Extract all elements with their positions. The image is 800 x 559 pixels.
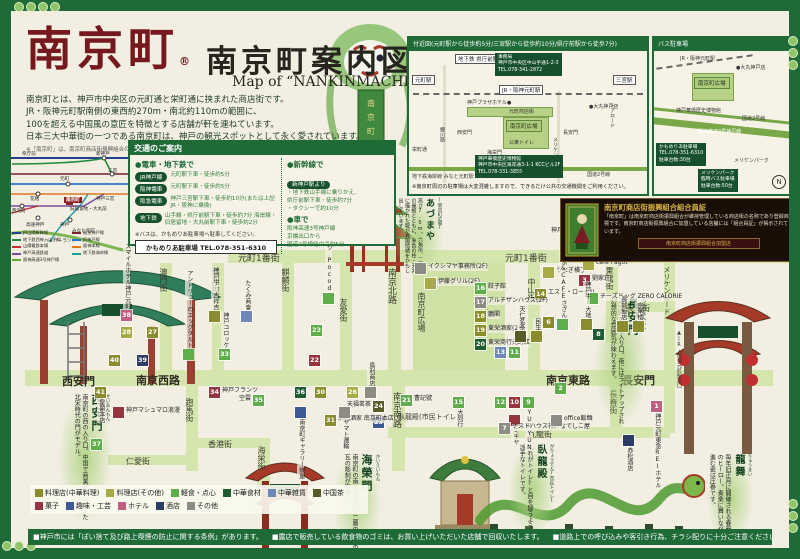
shop-marker: 34神戸フランツ	[209, 387, 220, 398]
panel-map-label: 長安門	[563, 129, 578, 136]
shop-marker: アンドリューのエッグタルト	[183, 349, 194, 360]
panel-map-label: メリケンパーク 臨時バス駐車場 駐車台数:50台	[698, 169, 738, 192]
bus-parking-note: ※バスは、かもめりあ駐車場へ駐車してください。	[135, 230, 277, 238]
marker-square: 16	[475, 283, 486, 294]
shop-label: 劉家荘	[592, 276, 610, 283]
marker-square	[113, 407, 124, 418]
legend-swatch	[171, 489, 179, 497]
shop-label: 空雲	[239, 396, 251, 403]
transport-guide-box: 交通のご案内 ●電車・地下鉄で JR神戸線元町駅下車・徒歩約5分阪神電車元町駅下…	[128, 140, 396, 246]
vicinity-map-panel: 付近図(元町駅から徒歩約5分/三宮駅から徒歩約10分/県庁前駅から徒歩7分) 地…	[407, 36, 649, 196]
shop-marker: 31順記酒家 南京町本店	[325, 415, 336, 426]
legend-label: 趣味・工芸	[76, 501, 111, 511]
marker-square: 39	[137, 355, 148, 366]
bus-parking-body: JR・阪神元町駅●大丸神戸店南京町広場神戸華僑歴史博物館国道2号線阪神高速3号神…	[654, 51, 793, 194]
shop-marker: 20東栄商行元町店	[475, 339, 486, 350]
street-label: 仁愛街	[126, 456, 150, 467]
legend-swatch	[156, 502, 164, 510]
member-certificate-stamp	[565, 203, 599, 257]
shop-marker: 17アルチザンハウス(2F)	[475, 297, 486, 308]
marker-square	[415, 263, 426, 274]
shop-marker: office飯麺	[551, 415, 562, 426]
rail-legend-item: 阪神高速3号神戸線	[12, 257, 72, 264]
marker-square	[623, 435, 634, 446]
shop-marker: チーズドッグ Pocod	[323, 293, 334, 304]
shop-label: 長城飯店	[619, 296, 626, 320]
footer-notes-bar: ■神戸市には「ぽい捨て及び路上喫煙の防止に関する条例」があります。■露店で販売し…	[28, 529, 772, 545]
marker-square	[531, 331, 542, 342]
shop-marker: うなぎ横丁	[543, 267, 554, 278]
legend-swatch	[106, 489, 114, 497]
legend-item: ホテル	[118, 501, 149, 511]
shop-label: イクシマヤ事務所(2F)	[428, 264, 488, 271]
shop-marker: 11	[509, 347, 520, 358]
registered-trademark-icon: ®	[179, 55, 190, 68]
intro-description: 南京町とは、神戸市中央区の元町通と栄町通に挟まれた商店街です。JR・阪神元町駅南…	[26, 94, 365, 143]
marker-square: 2	[555, 383, 566, 394]
station-label: 神戸	[60, 222, 69, 228]
member-certificate-plaque: 南京町商店街振興組合加盟店	[638, 238, 760, 249]
footer-note: ■露店で販売している飲食物のゴミは、お買い上げいただいた店舗で回収いたします。	[272, 529, 544, 545]
transport-train-column: ●電車・地下鉄で JR神戸線元町駅下車・徒歩約5分阪神電車元町駅下車・徒歩約5分…	[135, 158, 282, 254]
shop-marker: 鳥利商店	[365, 387, 376, 398]
transport-guide-title: 交通のご案内	[130, 142, 394, 155]
marker-square: 20	[475, 339, 486, 350]
rail-legend-swatch	[12, 246, 21, 248]
legend-swatch	[268, 489, 276, 497]
legend-swatch	[313, 489, 321, 497]
legend-label: 中国茶	[323, 488, 344, 498]
marker-square	[295, 407, 306, 418]
border-coin-ornament	[14, 2, 24, 12]
shop-label: 天福茗茶	[347, 402, 371, 409]
border-coin-ornament	[788, 60, 798, 70]
transport-row-text: 元町駅下車・徒歩約5分	[170, 172, 230, 179]
legend-item: 料理店(中華料理)	[35, 488, 99, 498]
shop-label: スマイルホテル神戸元町	[123, 243, 130, 309]
marker-square: 34	[209, 387, 220, 398]
legend-label: 中華雑貨	[278, 488, 306, 498]
marker-square: 10	[509, 397, 520, 408]
marker-square: 23	[311, 325, 322, 336]
shop-label: 伊藤グリル(2F)	[438, 279, 480, 286]
nankinmachi-map-page: 南京町® 南京町案内図 Map of “NANKINMACHI”area 南京町…	[0, 0, 800, 559]
shop-marker: 24天福茗茶	[373, 401, 384, 412]
panel-map-label: 事務局 神戸市中央区中山手通1-2-3 TEL.078-341-2872	[495, 53, 562, 76]
shop-marker: 民生	[531, 331, 542, 342]
rail-legend-label: 阪神高速3号神戸線	[23, 257, 59, 264]
shop-label: 京華楼	[635, 302, 642, 320]
category-legend: 料理店(中華料理)料理店(その他)軽食・点心中華食材中華雑貨中国茶菓子趣味・工芸…	[30, 485, 368, 514]
street-label: 香港街	[208, 439, 232, 450]
shop-label: チーズドッグ ZERO CALORIE	[600, 294, 682, 301]
rail-line-badge: JR神戸線	[135, 172, 167, 182]
marker-square: 31	[325, 415, 336, 426]
panel-map-label: 鯉川筋	[439, 127, 446, 142]
shop-label: 餃子館	[488, 284, 506, 291]
logo-text: 南京町	[26, 22, 179, 76]
rail-legend-label: 神戸高速鉄道	[23, 250, 48, 257]
transport-shinkansen-column: ●新幹線で 新神戸駅より ・地下鉄山手線に乗りかえ、 県庁前駅下車・徒歩約7分・…	[287, 158, 389, 254]
panel-map-label: 国道2号線	[587, 171, 610, 178]
shop-marker: 伊藤グリル(2F)	[425, 278, 436, 289]
street-label: 元町1番街	[505, 251, 547, 264]
shop-label: アンドリューのエッグタルト	[185, 270, 192, 348]
shop-marker: 6	[543, 317, 554, 328]
shop-marker: 2	[555, 383, 566, 394]
shop-marker: 23	[311, 325, 322, 336]
car-header: ●車で	[287, 214, 389, 225]
rail-legend-label: 地下鉄海岸線	[83, 250, 108, 257]
shop-marker: 19東栄酒家(2F)	[475, 325, 486, 336]
rail-line-badge: 阪急電車	[135, 196, 167, 206]
garyoden-description: がりょうでん(市民トイレ) 臥龍殿 これがトイレ?と目を疑うような派手なトイレで…	[508, 442, 556, 538]
marker-square: 30	[315, 387, 326, 398]
street-label: 西安門	[62, 373, 95, 389]
shop-marker: イクシマヤ事務所(2F)	[415, 263, 426, 274]
transport-train-row: 地下鉄山手線・県庁前駅下車・徒歩約7分 海岸線・旧居留地・大丸前駅下車・徒歩約2…	[135, 213, 277, 228]
member-certificate-title: 南京町商店街振興組合組合員証	[604, 203, 793, 213]
legend-item: 料理店(その他)	[106, 488, 163, 498]
shop-marker: 36	[295, 387, 306, 398]
marker-square	[323, 293, 334, 304]
rail-legend-swatch	[72, 239, 81, 241]
transport-row-text: 神戸三宮駅下車・徒歩約10分(または上記JR・阪神に乗換)	[170, 196, 277, 211]
legend-item: 菓子	[35, 501, 59, 511]
shop-label: 神戸マシュマロ浪漫	[126, 408, 180, 415]
panel-map-label: トアロード	[609, 103, 616, 128]
rail-legend-swatch	[72, 232, 81, 234]
transport-line: ・地下鉄山手線に乗りかえ、	[287, 190, 389, 198]
shop-label: たくみ商會	[243, 280, 250, 310]
transport-train-row: 阪神電車元町駅下車・徒歩約5分	[135, 184, 277, 194]
panel-map-label: 三宮駅	[613, 75, 636, 85]
rail-legend-label: 阪急神戸線	[83, 230, 104, 237]
panel-map-label: 神戸華僑歴史博物館	[676, 107, 721, 114]
border-coin-ornament	[2, 541, 12, 551]
member-certificate-textblock: 南京町商店街振興組合組合員証 「南京町」は南京町商店街振興組合が維持管理している…	[604, 203, 793, 257]
marker-square: 41	[95, 387, 106, 398]
shop-label: 曹記號	[414, 396, 432, 403]
shop-label: 神戸牛 吉祥吉	[211, 267, 218, 310]
rail-legend-item: 神戸高速鉄道	[12, 250, 72, 257]
station-label: 元町	[60, 176, 69, 182]
description-line: JR・阪神元町駅南側の東西約270m・南北約110mの範囲に、	[26, 106, 365, 118]
svg-text:京: 京	[367, 112, 375, 122]
shop-label: 神戸牛 大地	[583, 281, 590, 318]
shop-label: 赤松酒店	[625, 447, 632, 471]
shop-label: 皇蘭本店	[97, 399, 104, 423]
legend-swatch	[66, 502, 74, 510]
rail-line-badge: 阪神電車	[135, 184, 167, 194]
panel-map-label: 地下鉄海岸線 みなと元町駅	[412, 173, 474, 180]
shinkansen-header: ●新幹線で	[287, 159, 389, 170]
panel-map-label: 阪神高速3号神戸線	[698, 128, 741, 135]
station-label-nankinmachi: 南京町	[64, 197, 82, 203]
vicinity-title: 付近図(元町駅から徒歩約5分/三宮駅から徒歩約10分/県庁前駅から徒歩7分)	[409, 38, 647, 51]
panel-map-label: 南京町広場	[694, 77, 730, 89]
panel-map-label: ※南京町周辺の駐車場は大変混雑しますので、できるだけ公共の交通機関をご利用くださ…	[412, 183, 629, 190]
marker-square	[183, 349, 194, 360]
landmark-desc: これがトイレ?と目を疑うような派手なトイレです。	[517, 444, 533, 536]
shop-marker: 30	[315, 387, 326, 398]
transport-guide-body: ●電車・地下鉄で JR神戸線元町駅下車・徒歩約5分阪神電車元町駅下車・徒歩約5分…	[130, 155, 394, 257]
shop-label: 鵬閣	[488, 312, 500, 319]
station-label: 旧居留地・大丸前	[70, 206, 107, 212]
shinkansen-lines: ・地下鉄山手線に乗りかえ、 県庁前駅下車・徒歩約7分・タクシーで約10分	[287, 190, 389, 213]
legend-swatch	[223, 489, 231, 497]
shop-marker: 27	[147, 327, 158, 338]
street-label: 南京東路	[546, 372, 590, 388]
border-coin-ornament	[788, 48, 798, 58]
shop-marker: 南京町ギャラリー蝶屋	[295, 407, 306, 418]
shop-marker: 7ゲストハウス神戸なでしこ屋	[499, 423, 510, 434]
marker-square: 7	[499, 423, 510, 434]
shop-marker: 神戸牛 大地	[581, 319, 592, 330]
shop-marker: 神戸牛 吉祥吉	[209, 311, 220, 322]
border-coin-ornament	[788, 36, 798, 46]
shop-marker: 天仁茗茶	[515, 331, 526, 342]
street-label: 友愛街	[338, 298, 349, 322]
transport-line: 県庁前駅下車・徒歩約7分	[287, 198, 389, 206]
marker-square: 38	[121, 310, 132, 321]
legend-item: 中華雑貨	[268, 488, 306, 498]
marker-square: 37	[91, 439, 102, 450]
marker-square	[633, 321, 644, 332]
street-label: ▲JR・阪神元町駅東口	[676, 330, 683, 388]
street-label: 麒麟街	[280, 268, 291, 292]
shop-label: office飯麺	[564, 416, 592, 423]
shop-label: アルチザンハウス(2F)	[488, 298, 548, 305]
border-coin-ornament	[788, 499, 798, 509]
shop-marker: 35空雲	[253, 395, 264, 406]
shop-marker: 38スマイルホテル神戸元町	[121, 310, 132, 321]
legend-swatch	[35, 502, 43, 510]
station-label: 西元町	[12, 208, 26, 214]
legend-item: 趣味・工芸	[66, 501, 111, 511]
landmark-name: 臥龍殿	[533, 444, 548, 536]
marker-square	[543, 267, 554, 278]
marker-square	[551, 415, 562, 426]
transport-train-row: JR神戸線元町駅下車・徒歩約5分	[135, 172, 277, 182]
panel-map-label: 元町駅	[412, 75, 435, 85]
transport-row-text: 元町駅下車・徒歩約5分	[170, 184, 230, 191]
marker-square	[515, 331, 526, 342]
panel-map-label: N	[772, 175, 786, 189]
legend-label: 菓子	[45, 501, 59, 511]
legend-label: その他	[197, 501, 218, 511]
rail-legend-item: JR山陽新幹線	[12, 230, 72, 237]
legend-label: 酒店	[166, 501, 180, 511]
shop-marker: 10	[509, 397, 520, 408]
shop-marker: 神戸マシュマロ浪漫	[113, 407, 124, 418]
station-label: 神戸三宮	[96, 196, 114, 202]
street-label: メリケンロード	[662, 266, 672, 315]
shop-label: 民生	[533, 318, 540, 330]
panel-map-label: JR・阪神元町駅	[499, 85, 543, 95]
panel-map-label: 公衆トイレ	[509, 139, 534, 146]
legend-label: 料理店(その他)	[116, 488, 163, 498]
street-label: 澳門街	[158, 268, 169, 292]
train-subway-header: ●電車・地下鉄で	[135, 159, 277, 170]
marker-square	[241, 311, 252, 322]
street-label: 臥龍殿(市民トイレ)	[398, 412, 459, 422]
description-line: 南京町とは、神戸市中央区の元町通と栄町通に挟まれた商店街です。	[26, 94, 365, 106]
kamomeria-tel: かもめりあ駐車場 TEL.078-351-6310	[135, 240, 277, 254]
transport-line: 京橋出口から	[287, 234, 389, 242]
shop-label: 神戸フランツ	[222, 388, 258, 395]
border-coin-ornament	[26, 2, 36, 12]
street-label: 南京西路	[136, 372, 180, 388]
nankinmachi-logo: 南京町®	[26, 26, 190, 72]
marker-square: 11	[509, 347, 520, 358]
member-certificate-box: 南京町商店街振興組合組合員証 「南京町」は南京町商店街振興組合が維持管理している…	[560, 198, 798, 262]
shop-marker: 40	[109, 355, 120, 366]
marker-square: 26	[347, 387, 358, 398]
marker-square: 9	[523, 397, 534, 408]
marker-square: 19	[475, 325, 486, 336]
vicinity-body: 地下鉄 県庁前駅元町駅三宮駅事務局 神戸市中央区中山手通1-2-3 TEL.07…	[409, 51, 647, 194]
marker-square: 1	[651, 401, 662, 412]
street-label: 南京町広場	[416, 292, 427, 332]
panel-map-label: 国道2号線	[742, 115, 765, 122]
street-label: 跑馬街	[184, 398, 195, 422]
panel-map-label: 西安門	[457, 129, 472, 136]
panel-map-label: 神戸プラザホテル●	[467, 99, 511, 106]
vicinity-road	[443, 65, 446, 183]
shop-label: 大同行	[455, 409, 462, 427]
rail-legend-swatch	[12, 232, 21, 234]
shop-marker: 21曹記號	[401, 395, 412, 406]
marker-square: 6	[543, 317, 554, 328]
marker-square: 33	[219, 349, 230, 360]
panel-map-label: かもめりあ駐車場 TEL.078-351-6310 駐車台数:30台	[656, 143, 706, 166]
panel-map-label: 南京町広場	[506, 120, 542, 132]
shop-marker: 33神戸コロッケ	[219, 349, 230, 360]
transport-line: 国道2号線経由で約5分	[287, 242, 389, 250]
shop-marker: たくみ商會	[241, 311, 252, 322]
marker-square	[365, 387, 376, 398]
panel-map-label: メリケンパーク	[734, 157, 769, 164]
legend-item: 中国茶	[313, 488, 344, 498]
marker-square	[617, 321, 628, 332]
transport-line: ・タクシーで約10分	[287, 206, 389, 214]
shop-marker: 28	[121, 327, 132, 338]
description-line: 100を超える中国風の意匠を特徴とする店舗が軒を連ねています。	[26, 119, 365, 131]
station-label: 三宮	[108, 168, 117, 174]
shop-label: 南京町ギャラリー蝶屋	[297, 419, 304, 479]
marker-square: 35	[253, 395, 264, 406]
legend-label: 軽食・点心	[181, 488, 216, 498]
shop-label: 鳥利商店	[367, 362, 374, 386]
shop-marker: 15大同行	[453, 397, 464, 408]
shop-marker: 12	[495, 397, 506, 408]
legend-swatch	[35, 489, 43, 497]
shop-marker: 39	[137, 355, 148, 366]
shop-marker: 赤松酒店	[623, 435, 634, 446]
legend-label: ホテル	[128, 501, 149, 511]
rail-legend-swatch	[12, 259, 21, 261]
marker-square	[209, 311, 220, 322]
transport-train-row: 阪急電車神戸三宮駅下車・徒歩約10分(または上記JR・阪神に乗換)	[135, 196, 277, 211]
shop-marker: 37	[91, 439, 102, 450]
shop-marker: 京華楼	[633, 321, 644, 332]
border-coin-ornament	[38, 2, 48, 12]
marker-square: 27	[147, 327, 158, 338]
rail-legend-swatch	[12, 239, 21, 241]
marker-square	[581, 319, 592, 330]
marker-square	[557, 319, 568, 330]
shop-marker: 16餃子館	[475, 283, 486, 294]
marker-square: 8	[593, 329, 604, 340]
rail-legend-swatch	[72, 246, 81, 248]
legend-label: 中華食材	[233, 488, 261, 498]
border-coin-ornament	[50, 2, 60, 12]
marker-square: 15	[453, 397, 464, 408]
marker-square: 21	[401, 395, 412, 406]
border-coin-ornament	[788, 523, 798, 533]
marker-square: 18	[475, 311, 486, 322]
panel-map-label: 神戸華僑歴史博物館 神戸市中央区海岸通3-1-1 KCCビル2F TEL.078…	[475, 155, 563, 178]
marker-square: 40	[109, 355, 120, 366]
panel-map-label: 元町商店街	[509, 108, 534, 115]
member-certificate-body: 「南京町」は南京町商店街振興組合が維持管理している商店街の名称であり登録商標です…	[604, 214, 793, 236]
border-coin-ornament	[788, 511, 798, 521]
rail-legend-item: 阪急神戸線	[72, 230, 132, 237]
panel-map-label: ●大丸神戸店	[736, 64, 765, 71]
rail-legend-swatch	[12, 253, 21, 255]
marker-square	[339, 407, 350, 418]
legend-item: 中華食材	[223, 488, 261, 498]
marker-square: 13	[495, 347, 506, 358]
marker-square: 17	[475, 297, 486, 308]
shop-label: ヤマト運輸	[341, 419, 348, 449]
gate-east-illustration	[648, 290, 788, 458]
bus-parking-panel: バス駐車場 JR・阪神元町駅●大丸神戸店南京町広場神戸華僑歴史博物館国道2号線阪…	[652, 36, 795, 196]
shop-marker: 長城飯店	[617, 321, 628, 332]
marker-square	[425, 278, 436, 289]
shop-marker: 8	[593, 329, 604, 340]
svg-text:町: 町	[367, 127, 375, 136]
shop-marker: 41皇蘭本店	[95, 387, 106, 398]
marker-square: 22	[309, 355, 320, 366]
station-label: 花隈	[30, 196, 39, 202]
bus-parking-title: バス駐車場	[654, 38, 793, 51]
shop-marker: ヤマト運輸	[339, 407, 350, 418]
rail-line-badge: 地下鉄	[135, 213, 162, 223]
car-lines: 阪神高速3号神戸線京橋出口から国道2号線経由で約5分	[287, 226, 389, 249]
shop-marker: かき氷&CAFEさざん	[557, 319, 568, 330]
shop-marker: 1神戸元町東急REIホテル	[651, 401, 662, 412]
legend-label: 料理店(中華料理)	[45, 488, 99, 498]
rail-legend: JR山陽新幹線阪急神戸線地下鉄西神・山手線JR神戸線山陽電鉄本線阪神本線神戸高速…	[12, 230, 132, 264]
legend-swatch	[187, 502, 195, 510]
shop-label: 神戸元町東急REIホテル	[653, 413, 660, 488]
marker-square: 24	[373, 401, 384, 412]
panel-map-label: 栄町通	[412, 146, 427, 153]
shop-marker: 9YUNYUN	[523, 397, 534, 408]
legend-swatch	[118, 502, 126, 510]
shop-label: 天仁茗茶	[517, 306, 524, 330]
rail-legend-label: JR山陽新幹線	[23, 230, 48, 237]
marker-square: 28	[121, 327, 132, 338]
border-coin-ornament	[14, 541, 24, 551]
legend-item: その他	[187, 501, 218, 511]
svg-text:南: 南	[367, 98, 375, 108]
footer-note: ■神戸市には「ぽい捨て及び路上喫煙の防止に関する条例」があります。	[33, 529, 263, 545]
rail-legend-swatch	[72, 253, 81, 255]
marker-square: 12	[495, 397, 506, 408]
